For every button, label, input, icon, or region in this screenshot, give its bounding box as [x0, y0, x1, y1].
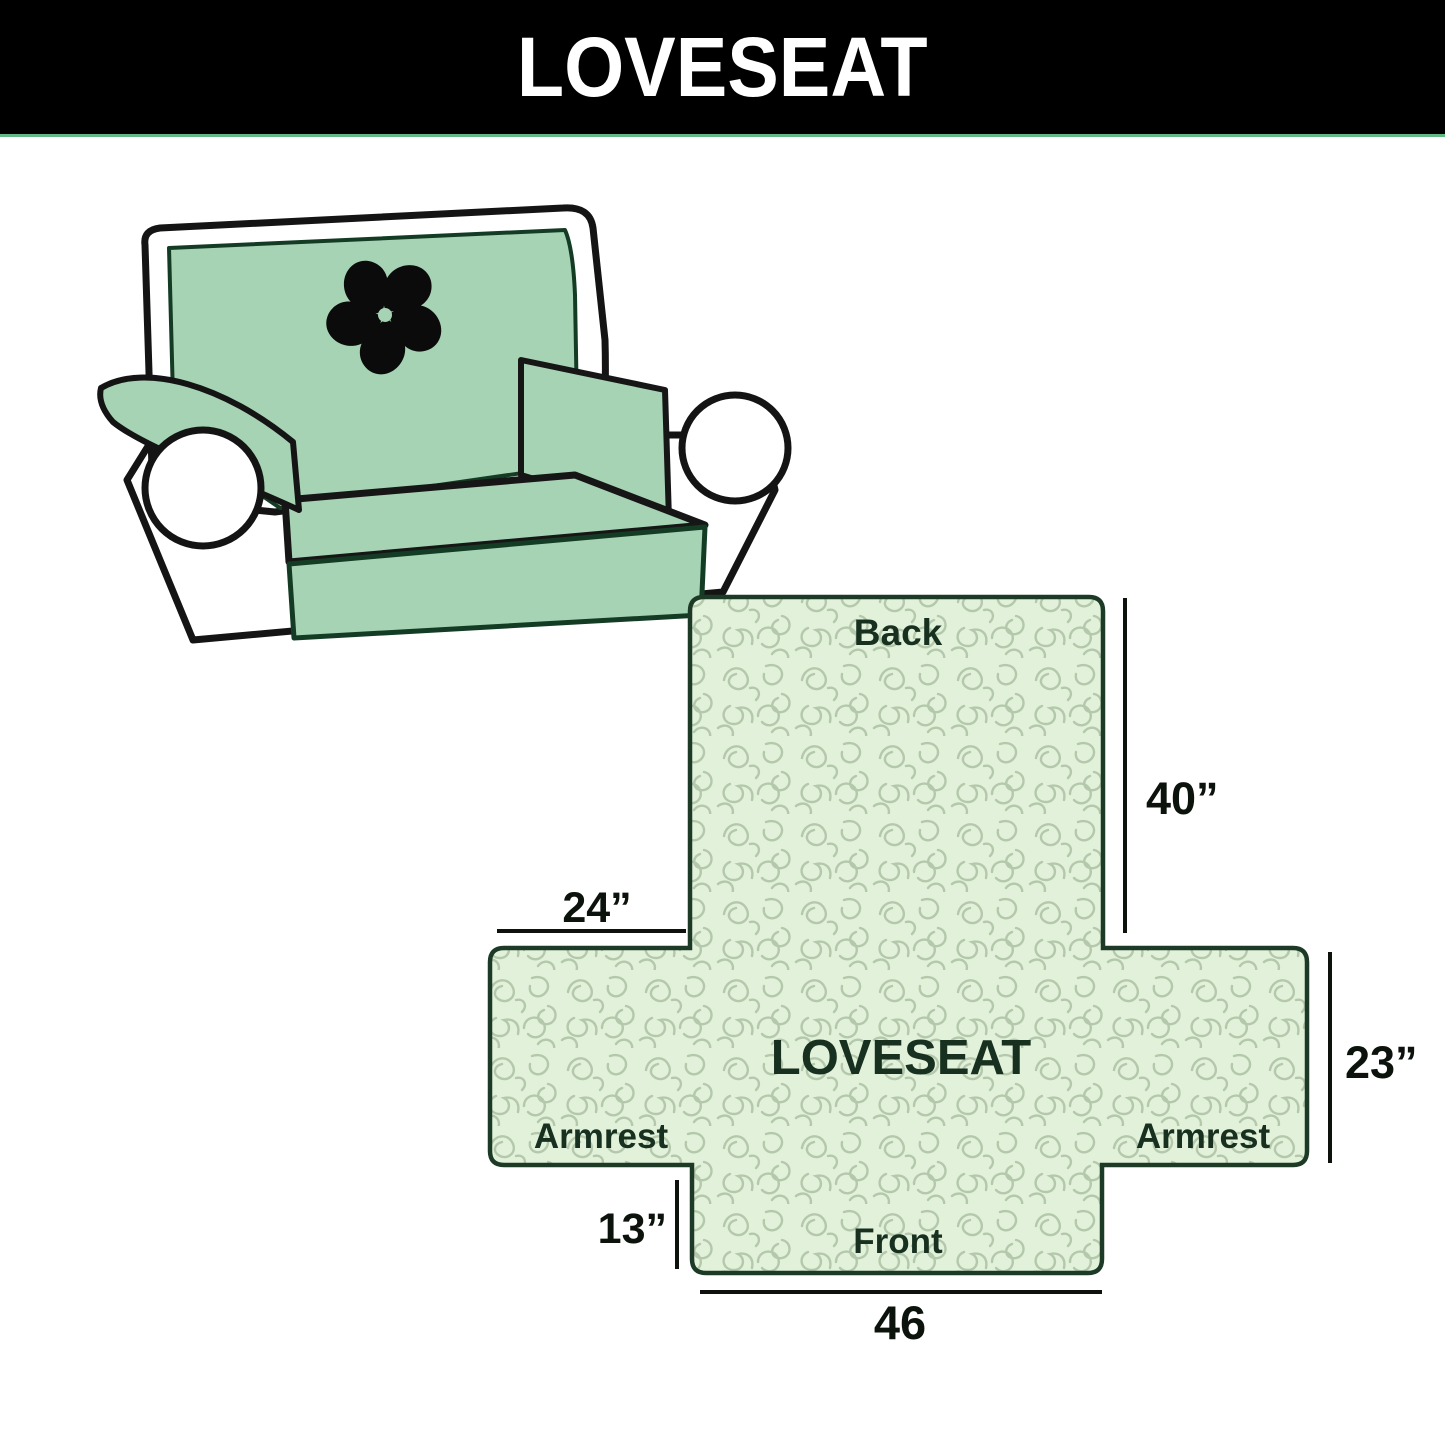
- back-height-value: 40”: [1146, 773, 1219, 824]
- right-arm-roll: [682, 395, 788, 501]
- cover-diagram: Back LOVESEAT Armrest Armrest Front 40” …: [480, 580, 1445, 1350]
- front-width-value: 46: [874, 1296, 926, 1349]
- armrest-right-label: Armrest: [1136, 1117, 1271, 1156]
- pinwheel-center: [378, 308, 392, 322]
- center-label: LOVESEAT: [771, 1031, 1032, 1085]
- banner-title: LOVESEAT: [517, 25, 928, 109]
- armrest-width-value: 24”: [562, 884, 631, 932]
- seat-height-value: 23”: [1345, 1037, 1418, 1088]
- front-label: Front: [853, 1222, 943, 1261]
- banner: LOVESEAT: [0, 0, 1445, 137]
- left-arm-roll: [145, 430, 261, 546]
- back-label: Back: [854, 612, 943, 653]
- page: LOVESEAT: [0, 0, 1445, 1445]
- cover-cross-shape: [490, 597, 1307, 1273]
- front-drop-value: 13”: [598, 1205, 667, 1253]
- armrest-left-label: Armrest: [534, 1117, 669, 1156]
